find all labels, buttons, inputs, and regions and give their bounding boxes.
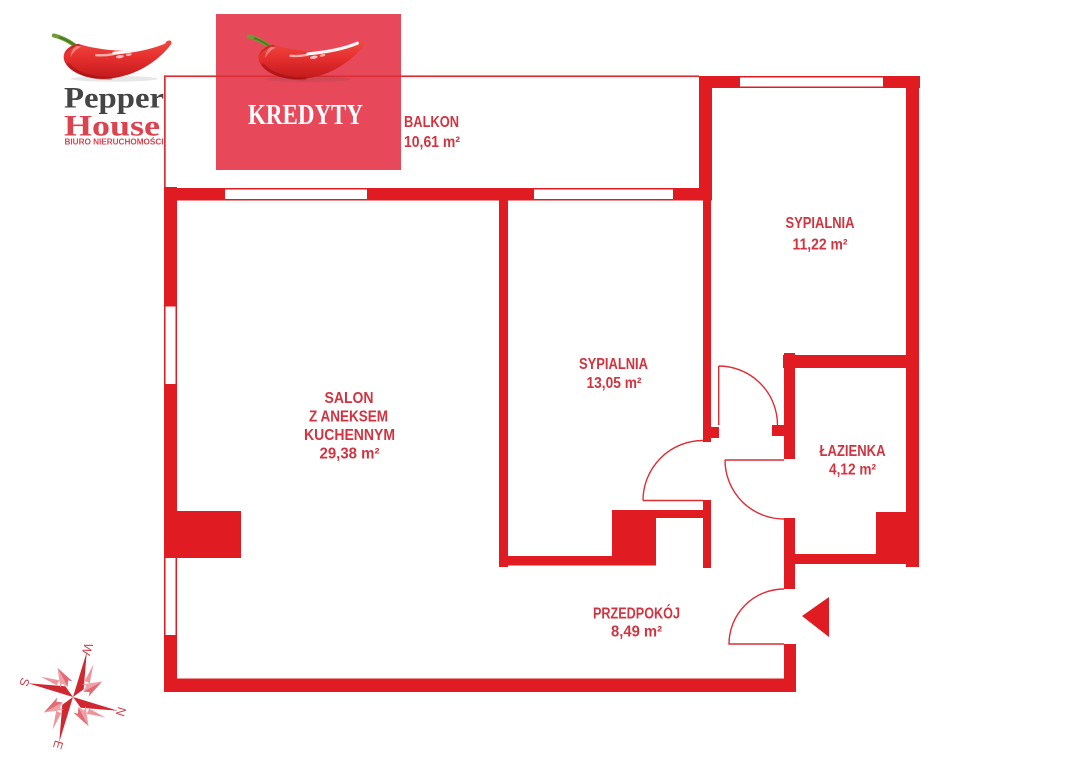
svg-text:BALKON: BALKON: [404, 114, 459, 131]
svg-text:KREDYTY: KREDYTY: [248, 100, 363, 131]
svg-text:13,05 m²: 13,05 m²: [587, 375, 642, 392]
svg-text:8,49 m²: 8,49 m²: [611, 624, 662, 641]
svg-text:10,61 m²: 10,61 m²: [404, 134, 460, 151]
svg-text:S: S: [16, 676, 32, 688]
svg-text:Z ANEKSEM: Z ANEKSEM: [309, 409, 388, 426]
svg-text:4,12 m²: 4,12 m²: [829, 462, 876, 479]
svg-text:W: W: [79, 641, 96, 657]
svg-text:11,22 m²: 11,22 m²: [793, 237, 848, 254]
svg-text:SYPIALNIA: SYPIALNIA: [786, 215, 855, 232]
svg-text:SYPIALNIA: SYPIALNIA: [579, 356, 648, 373]
svg-text:N: N: [113, 705, 129, 718]
svg-text:BIURO NIERUCHOMOŚCI: BIURO NIERUCHOMOŚCI: [65, 138, 164, 147]
svg-text:29,38 m²: 29,38 m²: [320, 446, 380, 463]
svg-text:KUCHENNYM: KUCHENNYM: [304, 427, 395, 444]
svg-text:PRZEDPOKÓJ: PRZEDPOKÓJ: [593, 605, 680, 623]
svg-text:E: E: [50, 739, 66, 751]
svg-text:ŁAZIENKA: ŁAZIENKA: [820, 443, 886, 460]
svg-text:SALON: SALON: [325, 390, 374, 407]
